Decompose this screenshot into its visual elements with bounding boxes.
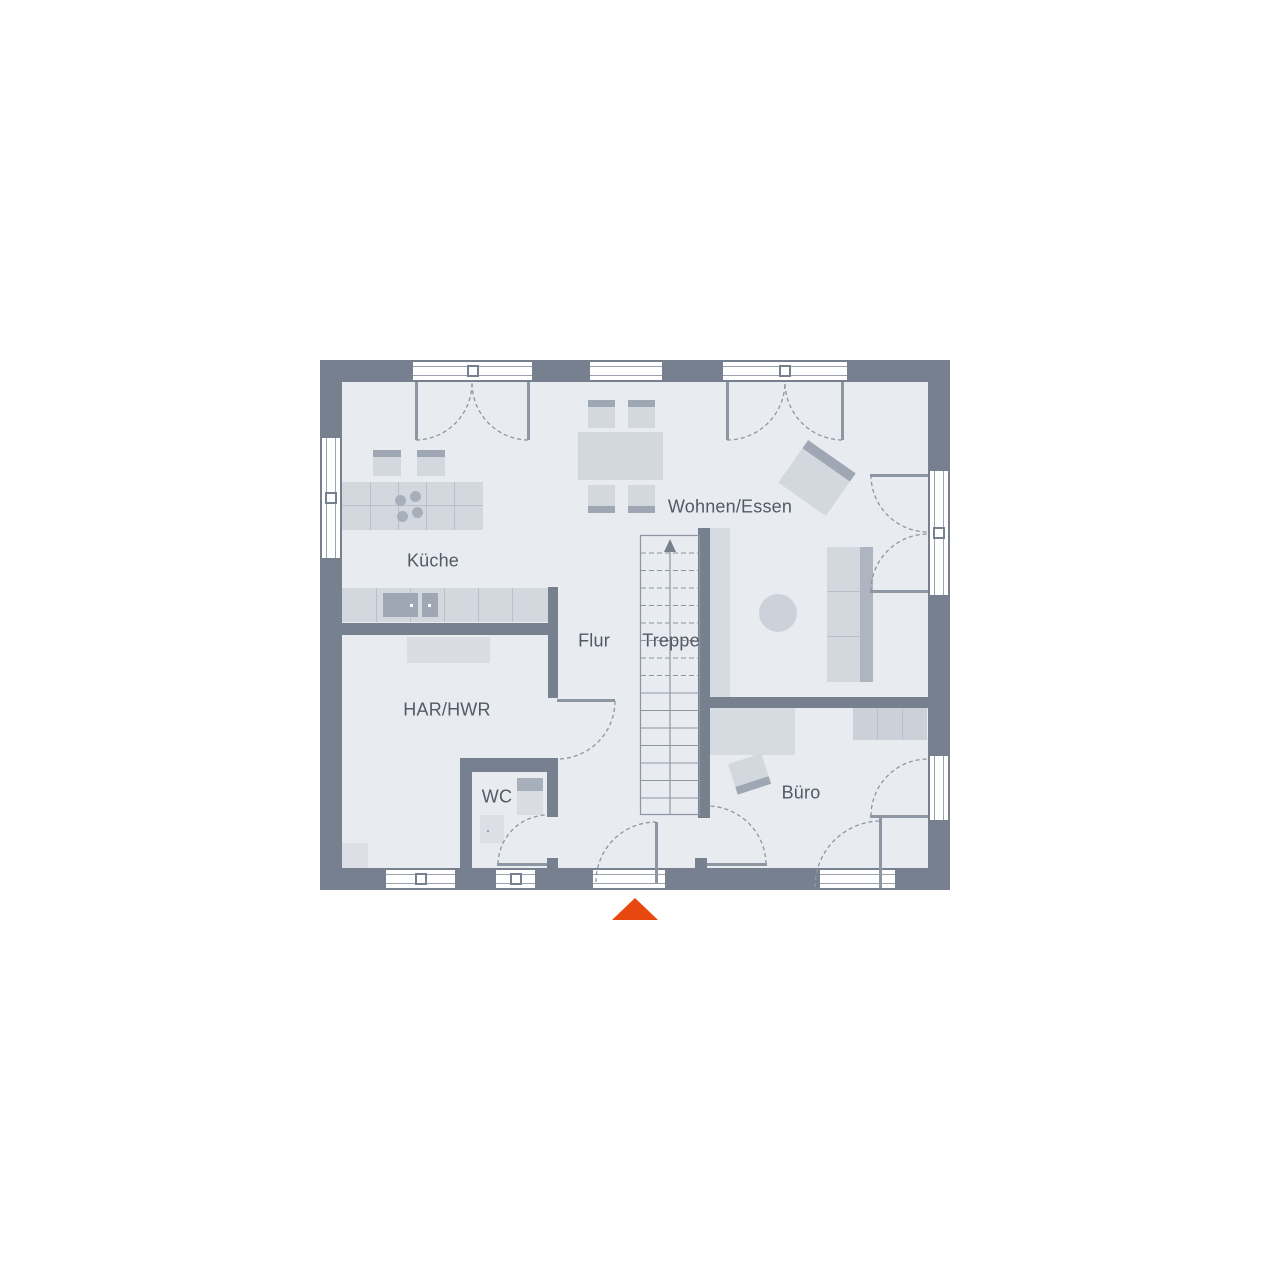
room-label-flur: Flur (578, 631, 610, 652)
floorplan-canvas: Küche Wohnen/Essen Flur Treppe HAR/HWR W… (0, 0, 1280, 1280)
stairs-up-arrow-icon (664, 539, 676, 552)
room-label-har-hwr: HAR/HWR (403, 700, 490, 721)
room-label-kueche: Küche (407, 551, 459, 572)
door-swing-and-stairs-overlay (320, 360, 950, 890)
room-label-treppe: Treppe (642, 631, 700, 652)
entrance-marker-icon (612, 898, 658, 920)
room-label-buero: Büro (782, 783, 821, 804)
room-label-wc: WC (482, 787, 512, 808)
staircase (641, 536, 700, 815)
room-label-wohnen-essen: Wohnen/Essen (668, 497, 792, 518)
floor-plan: Küche Wohnen/Essen Flur Treppe HAR/HWR W… (320, 360, 950, 890)
